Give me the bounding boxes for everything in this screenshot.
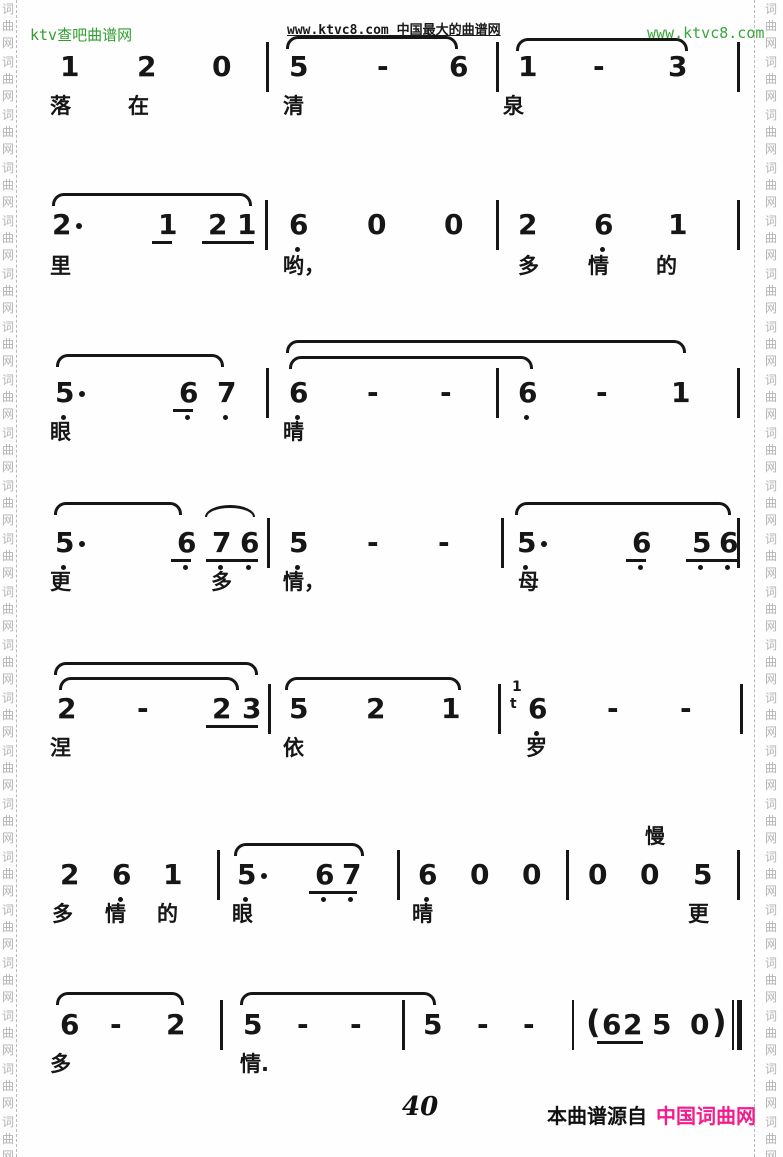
- watermark-char: 词: [2, 745, 14, 757]
- source-site-link[interactable]: 中国词曲网: [656, 1100, 756, 1129]
- watermark-char: 曲: [2, 868, 14, 880]
- watermark-char: 网: [2, 461, 14, 473]
- watermark-char: 词: [2, 427, 14, 439]
- watermark-char: 网: [765, 938, 777, 950]
- note: 6: [528, 694, 547, 724]
- watermark-char: 词: [765, 3, 777, 15]
- watermark-char: 词: [2, 480, 14, 492]
- watermark-char: 网: [2, 567, 14, 579]
- note: 7: [217, 378, 236, 408]
- note: 6: [518, 378, 537, 408]
- note: 5: [423, 1010, 442, 1040]
- low-octave-dot: [185, 415, 190, 420]
- lyric-syllable: 在: [128, 94, 149, 118]
- beam-line: [173, 409, 193, 412]
- note: 0: [588, 860, 607, 890]
- duration-dot: [261, 873, 267, 879]
- barline: [266, 42, 269, 92]
- barline: [397, 850, 400, 900]
- note: 6: [179, 378, 198, 408]
- watermark-char: 曲: [765, 391, 777, 403]
- lyric-syllable: 依: [283, 736, 304, 760]
- watermark-char: 曲: [765, 974, 777, 986]
- lyric-syllable: 多: [50, 1052, 71, 1076]
- slur-mark: [234, 843, 364, 856]
- barline: [402, 1000, 405, 1050]
- watermark-char: 曲: [2, 20, 14, 32]
- watermark-char: 曲: [2, 603, 14, 615]
- lyric-syllable: 清: [283, 94, 304, 118]
- duration-dot: [76, 223, 82, 229]
- watermark-char: 网: [765, 885, 777, 897]
- watermark-char: 词: [765, 374, 777, 386]
- lyric-syllable: 罗: [526, 736, 547, 760]
- page-number: 40: [402, 1092, 438, 1122]
- barline: [265, 200, 268, 250]
- note: ): [712, 1007, 727, 1037]
- watermark-char: 网: [765, 514, 777, 526]
- watermark-char: 曲: [765, 815, 777, 827]
- low-octave-dot: [321, 897, 326, 902]
- note: -: [367, 528, 379, 558]
- watermark-char: 曲: [765, 338, 777, 350]
- slur-mark: [54, 662, 258, 675]
- lyric-syllable: 涅: [50, 736, 71, 760]
- note: (: [586, 1007, 601, 1037]
- watermark-char: 词: [2, 957, 14, 969]
- beam-line: [597, 1041, 643, 1044]
- barline: [737, 850, 740, 900]
- watermark-char: 词: [765, 1063, 777, 1075]
- slur-mark: [52, 193, 252, 206]
- watermark-char: 词: [765, 268, 777, 280]
- note: -: [438, 528, 450, 558]
- note: 1: [512, 680, 522, 694]
- note: 5: [55, 378, 74, 408]
- note: -: [297, 1010, 309, 1040]
- note: 2: [166, 1010, 185, 1040]
- watermark-char: 词: [2, 321, 14, 333]
- watermark-char: 曲: [2, 73, 14, 85]
- note: 5: [652, 1010, 671, 1040]
- watermark-char: 词: [765, 56, 777, 68]
- low-octave-dot: [295, 247, 300, 252]
- watermark-char: 词: [765, 321, 777, 333]
- note: 0: [522, 860, 541, 890]
- watermark-char: 词: [2, 639, 14, 651]
- watermark-char: 网: [2, 1044, 14, 1056]
- beam-line: [152, 241, 172, 244]
- watermark-char: 词: [765, 639, 777, 651]
- watermark-char: 网: [2, 196, 14, 208]
- watermark-char: 词: [2, 533, 14, 545]
- watermark-char: 网: [765, 673, 777, 685]
- watermark-char: 词: [2, 215, 14, 227]
- watermark-char: 网: [765, 779, 777, 791]
- watermark-char: 词: [2, 268, 14, 280]
- note: -: [350, 1010, 362, 1040]
- barline: [740, 684, 743, 734]
- watermark-char: 词: [765, 851, 777, 863]
- watermark-char: 曲: [765, 1133, 777, 1145]
- watermark-char: 曲: [765, 497, 777, 509]
- watermark-char: 网: [765, 726, 777, 738]
- duration-dot: [79, 541, 85, 547]
- watermark-char: 网: [765, 1150, 777, 1157]
- beam-line: [202, 241, 254, 244]
- note: 0: [470, 860, 489, 890]
- watermark-char: 网: [765, 567, 777, 579]
- slur-mark: [54, 502, 182, 515]
- watermark-char: 网: [2, 37, 14, 49]
- barline: [267, 518, 270, 568]
- watermark-char: 曲: [2, 444, 14, 456]
- watermark-char: 网: [765, 249, 777, 261]
- duration-dot: [541, 541, 547, 547]
- low-octave-dot: [246, 565, 251, 570]
- lyric-syllable: 的: [656, 254, 677, 278]
- note: -: [523, 1010, 535, 1040]
- note: 6: [449, 52, 468, 82]
- watermark-char: 词: [2, 1116, 14, 1128]
- watermark-char: 网: [2, 991, 14, 1003]
- note: 5: [289, 52, 308, 82]
- watermark-char: 曲: [2, 1080, 14, 1092]
- watermark-char: 词: [2, 586, 14, 598]
- beam-line: [171, 559, 191, 562]
- watermark-char: 网: [765, 302, 777, 314]
- watermark-char: 词: [2, 692, 14, 704]
- watermark-char: 曲: [2, 285, 14, 297]
- barline: [496, 200, 499, 250]
- note: 5: [692, 528, 711, 558]
- note: 2: [366, 694, 385, 724]
- barline: [566, 850, 569, 900]
- note: 6: [60, 1010, 79, 1040]
- watermark-char: 曲: [2, 815, 14, 827]
- watermark-char: 曲: [2, 497, 14, 509]
- watermark-char: 曲: [765, 20, 777, 32]
- note: 7: [212, 528, 231, 558]
- note: 6: [315, 860, 334, 890]
- watermark-char: 词: [765, 533, 777, 545]
- watermark-char: 网: [765, 355, 777, 367]
- watermark-char: 网: [765, 90, 777, 102]
- watermark-char: 网: [765, 408, 777, 420]
- note: 6: [177, 528, 196, 558]
- watermark-char: 网: [2, 249, 14, 261]
- watermark-char: 曲: [2, 126, 14, 138]
- low-octave-dot: [725, 565, 730, 570]
- slur-mark: [286, 340, 686, 353]
- note: 1: [668, 210, 687, 240]
- watermark-char: 曲: [765, 1080, 777, 1092]
- barline: [737, 200, 740, 250]
- lyric-syllable: 晴: [283, 420, 304, 444]
- low-octave-dot: [698, 565, 703, 570]
- watermark-char: 曲: [2, 921, 14, 933]
- watermark-char: 曲: [2, 391, 14, 403]
- watermark-char: 网: [765, 1044, 777, 1056]
- watermark-char: 词: [765, 745, 777, 757]
- lyric-syllable: 落: [50, 94, 71, 118]
- watermark-char: 词: [765, 957, 777, 969]
- lyric-syllable: 多: [211, 570, 232, 594]
- sheet-music-page: 词曲网词曲网词曲网词曲网词曲网词曲网词曲网词曲网词曲网词曲网词曲网词曲网词曲网词…: [0, 0, 783, 1157]
- watermark-char: 网: [2, 1097, 14, 1109]
- note: -: [596, 378, 608, 408]
- note: 5: [289, 528, 308, 558]
- lyric-syllable: 的: [157, 902, 178, 926]
- watermark-char: 词: [2, 1063, 14, 1075]
- lyric-syllable: 情: [588, 254, 609, 278]
- low-octave-dot: [524, 415, 529, 420]
- low-octave-dot: [183, 565, 188, 570]
- barline: [498, 684, 501, 734]
- note: 0: [212, 52, 231, 82]
- watermark-char: 曲: [2, 338, 14, 350]
- beam-line: [686, 559, 738, 562]
- note: 6: [289, 210, 308, 240]
- beam-line: [309, 891, 357, 894]
- note: -: [367, 378, 379, 408]
- watermark-char: 词: [765, 904, 777, 916]
- slur-mark: [286, 36, 458, 49]
- watermark-char: 词: [765, 215, 777, 227]
- watermark-char: 词: [2, 798, 14, 810]
- watermark-char: 词: [2, 56, 14, 68]
- barline: [220, 1000, 223, 1050]
- right-margin-dashed-line: [754, 0, 755, 1157]
- beam-line: [206, 725, 258, 728]
- watermark-char: 曲: [765, 762, 777, 774]
- site-link-left[interactable]: ktv查吧曲谱网: [30, 24, 132, 45]
- note: -: [680, 694, 692, 724]
- low-octave-dot: [638, 565, 643, 570]
- watermark-char: 曲: [765, 709, 777, 721]
- note: 2: [57, 694, 76, 724]
- watermark-char: 曲: [765, 550, 777, 562]
- lyric-syllable: 情，: [283, 570, 325, 594]
- watermark-char: 曲: [2, 550, 14, 562]
- barline: [496, 42, 499, 92]
- watermark-char: 网: [2, 620, 14, 632]
- watermark-char: 网: [765, 620, 777, 632]
- watermark-char: 网: [2, 938, 14, 950]
- watermark-char: 曲: [765, 921, 777, 933]
- watermark-char: 曲: [2, 232, 14, 244]
- note: 0: [444, 210, 463, 240]
- watermark-char: 曲: [765, 444, 777, 456]
- slur-mark: [59, 677, 239, 690]
- watermark-char: 曲: [765, 232, 777, 244]
- note: 2: [518, 210, 537, 240]
- note: 6: [289, 378, 308, 408]
- watermark-char: 词: [765, 798, 777, 810]
- lyric-syllable: 眼: [50, 420, 71, 444]
- note: 1: [163, 860, 182, 890]
- watermark-char: 词: [765, 162, 777, 174]
- barline: [501, 518, 504, 568]
- watermark-char: 网: [2, 779, 14, 791]
- note: 2: [208, 210, 227, 240]
- barline: [737, 1000, 742, 1050]
- note: t: [510, 697, 517, 711]
- note: 3: [242, 694, 261, 724]
- lyric-syllable: 情: [105, 902, 126, 926]
- lyric-syllable: 哟，: [283, 254, 325, 278]
- watermark-char: 词: [765, 586, 777, 598]
- watermark-char: 网: [2, 355, 14, 367]
- watermark-char: 网: [2, 673, 14, 685]
- note: 2: [623, 1010, 642, 1040]
- note: 2: [212, 694, 231, 724]
- low-octave-dot: [223, 415, 228, 420]
- lyric-syllable: 更: [50, 570, 71, 594]
- lyric-syllable: 更: [688, 902, 709, 926]
- watermark-char: 词: [2, 904, 14, 916]
- note: 6: [418, 860, 437, 890]
- barline: [737, 42, 740, 92]
- watermark-char: 网: [765, 37, 777, 49]
- watermark-char: 曲: [2, 179, 14, 191]
- watermark-char: 网: [2, 832, 14, 844]
- watermark-char: 词: [765, 480, 777, 492]
- slur-mark: [56, 992, 184, 1005]
- lyric-syllable: 泉: [503, 94, 524, 118]
- low-octave-dot: [600, 247, 605, 252]
- note: -: [137, 694, 149, 724]
- watermark-char: 网: [2, 143, 14, 155]
- watermark-char: 网: [2, 90, 14, 102]
- note: 6: [112, 860, 131, 890]
- watermark-char: 词: [765, 1116, 777, 1128]
- watermark-char: 网: [2, 514, 14, 526]
- watermark-char: 曲: [765, 1027, 777, 1039]
- note: -: [377, 52, 389, 82]
- note: 1: [237, 210, 256, 240]
- note: 6: [602, 1010, 621, 1040]
- watermark-char: 词: [2, 109, 14, 121]
- watermark-char: 词: [2, 1010, 14, 1022]
- lyric-syllable: 多: [52, 902, 73, 926]
- note: 0: [367, 210, 386, 240]
- note: 5: [289, 694, 308, 724]
- watermark-char: 曲: [2, 656, 14, 668]
- watermark-char: 曲: [2, 1027, 14, 1039]
- watermark-char: 网: [765, 461, 777, 473]
- barline: [732, 1000, 734, 1050]
- note: -: [607, 694, 619, 724]
- beam-line: [206, 559, 258, 562]
- note: 6: [719, 528, 738, 558]
- note: 1: [671, 378, 690, 408]
- note: 2: [52, 210, 71, 240]
- lyric-syllable: 情.: [240, 1052, 269, 1076]
- note: 6: [594, 210, 613, 240]
- tempo-annotation: 慢: [645, 820, 665, 849]
- note: 5: [243, 1010, 262, 1040]
- watermark-char: 词: [765, 427, 777, 439]
- watermark-char: 曲: [765, 603, 777, 615]
- note: 7: [342, 860, 361, 890]
- note: 2: [60, 860, 79, 890]
- note: 6: [240, 528, 259, 558]
- watermark-char: 网: [765, 196, 777, 208]
- watermark-char: 网: [765, 1097, 777, 1109]
- watermark-char: 曲: [765, 868, 777, 880]
- note: -: [593, 52, 605, 82]
- watermark-char: 词: [765, 1010, 777, 1022]
- note: 5: [237, 860, 256, 890]
- watermark-char: 网: [2, 885, 14, 897]
- barline: [572, 1000, 574, 1050]
- slur-mark: [205, 505, 255, 517]
- watermark-char: 网: [765, 991, 777, 1003]
- watermark-char: 网: [2, 726, 14, 738]
- note: 1: [518, 52, 537, 82]
- watermark-char: 曲: [765, 179, 777, 191]
- slur-mark: [56, 354, 224, 367]
- note: 1: [441, 694, 460, 724]
- note: 6: [632, 528, 651, 558]
- slur-mark: [240, 992, 436, 1005]
- watermark-char: 曲: [2, 762, 14, 774]
- watermark-char: 曲: [765, 126, 777, 138]
- beam-line: [626, 559, 646, 562]
- watermark-char: 曲: [765, 285, 777, 297]
- lyric-syllable: 晴: [412, 902, 433, 926]
- watermark-char: 词: [765, 109, 777, 121]
- note: 1: [60, 52, 79, 82]
- source-label: 本曲谱源自: [547, 1100, 647, 1129]
- left-margin-dashed-line: [16, 0, 17, 1157]
- watermark-char: 曲: [765, 656, 777, 668]
- note: 1: [158, 210, 177, 240]
- note: 0: [690, 1010, 709, 1040]
- note: 5: [55, 528, 74, 558]
- watermark-char: 曲: [2, 974, 14, 986]
- barline: [737, 368, 740, 418]
- barline: [266, 368, 269, 418]
- lyric-syllable: 母: [518, 570, 539, 594]
- slur-mark: [285, 677, 461, 690]
- lyric-syllable: 多: [518, 254, 539, 278]
- note: 5: [693, 860, 712, 890]
- watermark-char: 曲: [765, 73, 777, 85]
- barline: [496, 368, 499, 418]
- duration-dot: [79, 391, 85, 397]
- note: -: [440, 378, 452, 408]
- watermark-char: 曲: [2, 1133, 14, 1145]
- watermark-char: 词: [2, 3, 14, 15]
- note: 3: [668, 52, 687, 82]
- note: 0: [640, 860, 659, 890]
- watermark-char: 词: [765, 692, 777, 704]
- watermark-char: 网: [2, 302, 14, 314]
- watermark-char: 曲: [2, 709, 14, 721]
- lyric-syllable: 眼: [232, 902, 253, 926]
- watermark-char: 词: [2, 851, 14, 863]
- note: -: [477, 1010, 489, 1040]
- watermark-char: 网: [2, 1150, 14, 1157]
- watermark-char: 网: [765, 143, 777, 155]
- watermark-char: 词: [2, 374, 14, 386]
- barline: [268, 684, 271, 734]
- note: 5: [517, 528, 536, 558]
- watermark-char: 网: [2, 408, 14, 420]
- watermark-char: 词: [2, 162, 14, 174]
